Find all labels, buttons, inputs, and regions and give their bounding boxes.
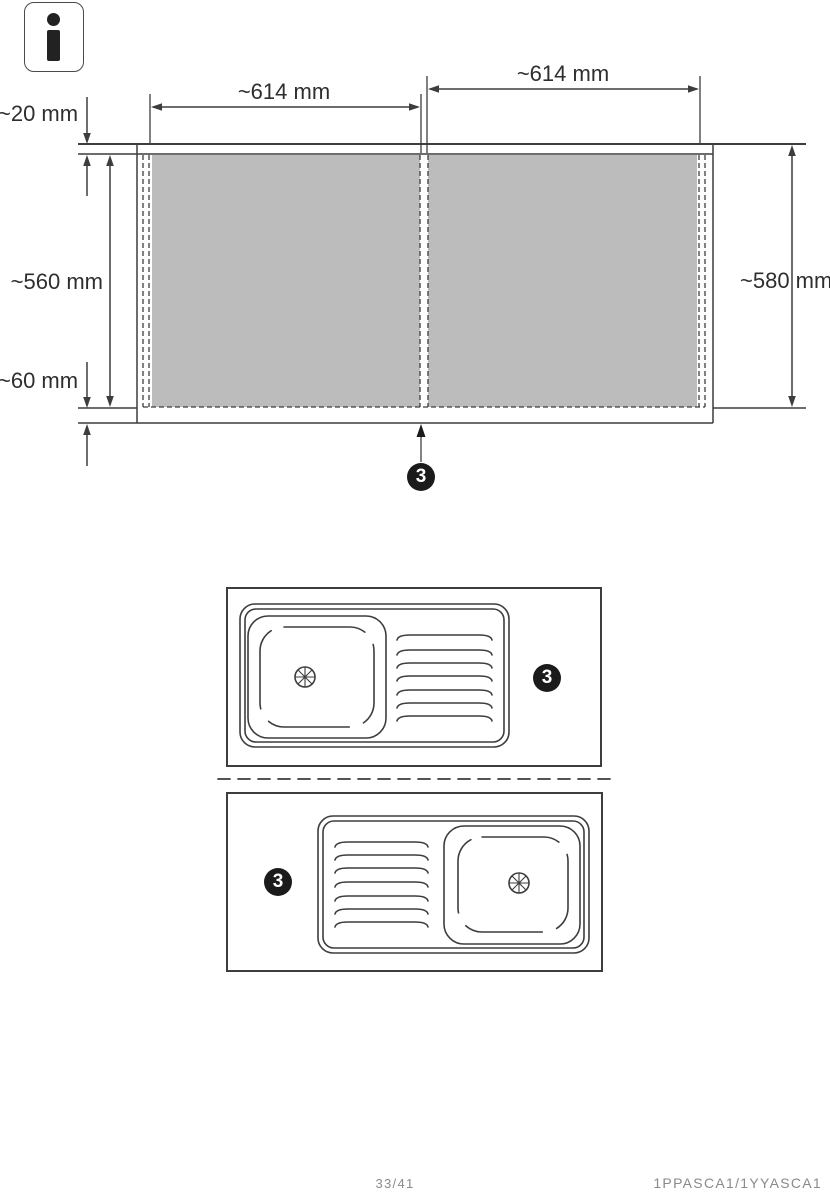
drain-icon — [295, 667, 315, 687]
dim-thickness-20 — [83, 97, 91, 196]
diagram-lines — [78, 76, 806, 466]
installation-diagram — [0, 0, 830, 540]
manual-page: ~614 mm ~614 mm ~20 mm ~560 mm ~60 mm ~5… — [0, 0, 830, 1200]
document-code: 1PPASCA1/1YYASCA1 — [600, 1175, 822, 1191]
dim-plinth-60 — [83, 362, 91, 466]
callout-3-sink-bottom: 3 — [264, 868, 292, 896]
label-width-left: ~614 mm — [199, 79, 369, 105]
label-total-height: ~580 mm — [740, 268, 830, 294]
label-inner-height: ~560 mm — [0, 269, 103, 295]
page-number: 33/41 — [330, 1176, 460, 1191]
drainboard-ridges — [397, 635, 492, 721]
label-thickness: ~20 mm — [0, 101, 78, 127]
drainboard-ridges — [335, 842, 428, 927]
callout-3-top-diagram: 3 — [407, 463, 435, 491]
drain-icon — [509, 873, 529, 893]
niche-panel-left — [152, 155, 420, 407]
label-plinth-height: ~60 mm — [0, 368, 78, 394]
callout-arrow — [417, 424, 426, 462]
callout-3-sink-top: 3 — [533, 664, 561, 692]
niche-panel-right — [428, 155, 697, 407]
sink-lines — [218, 588, 612, 971]
dim-height-560 — [106, 155, 114, 407]
label-width-right: ~614 mm — [478, 61, 648, 87]
sink-diagrams — [0, 560, 830, 1040]
